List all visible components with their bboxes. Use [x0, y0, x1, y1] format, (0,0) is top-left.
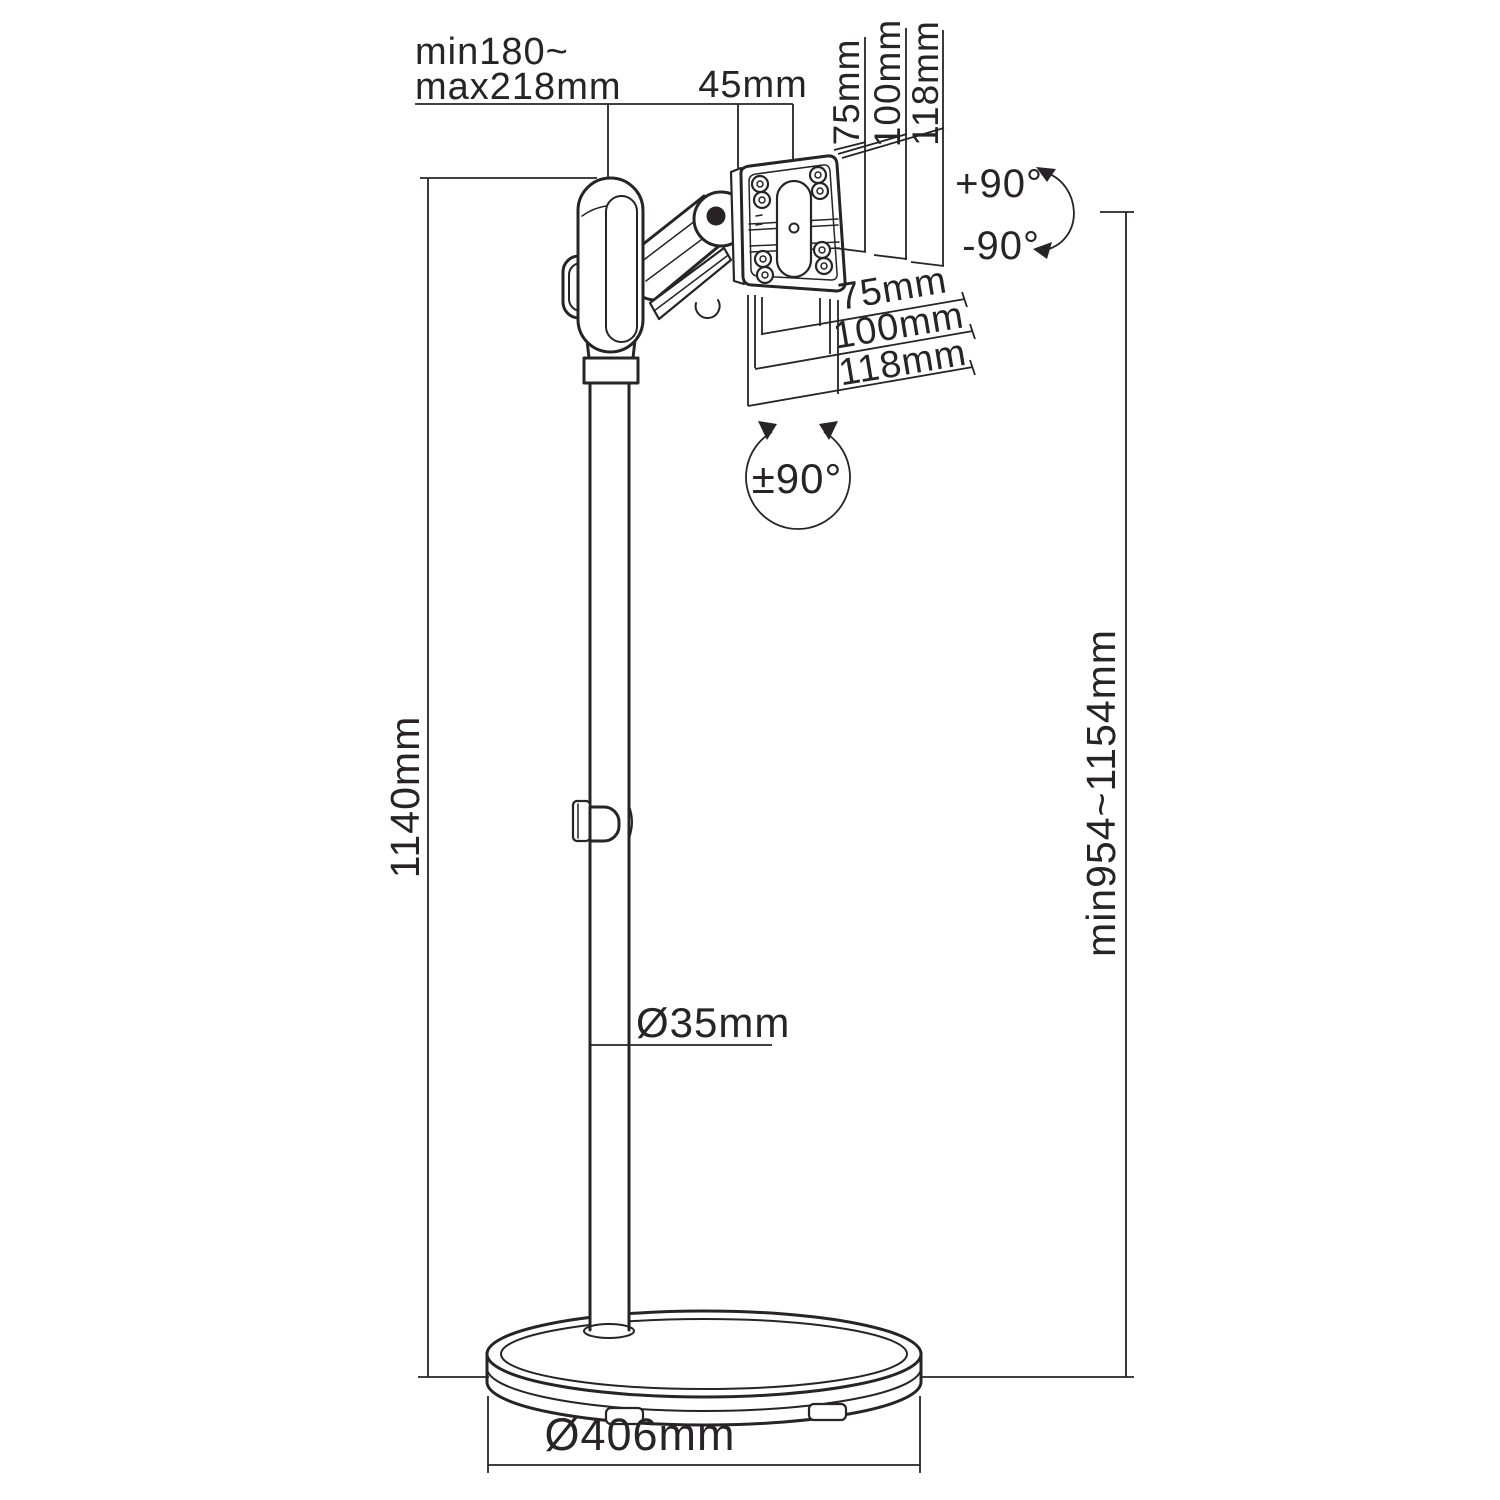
tab-lobe — [812, 183, 828, 199]
vesa-vertical-75-label: 75mm — [826, 39, 867, 146]
tilt-up-label: +90° — [955, 162, 1043, 206]
rotation-arrow-left-icon — [758, 421, 777, 440]
plate-mark — [756, 215, 762, 216]
vesa-plate — [731, 156, 845, 291]
spring-arm — [627, 192, 748, 319]
annotation-rotation: ±90° — [746, 421, 850, 529]
tab-lobe — [755, 251, 771, 267]
pole-diameter-label: Ø35mm — [636, 999, 790, 1046]
dim-base-diameter: Ø406mm — [488, 1396, 920, 1473]
dim-pole-height: 1140mm — [382, 178, 597, 1377]
base-foot-right — [809, 1404, 846, 1420]
pole-head — [563, 178, 643, 352]
dim-arm-reach: min180~ max218mm 45mm — [415, 31, 808, 179]
tab-lobe — [754, 192, 770, 208]
plate-center-boss — [777, 181, 811, 277]
tab-lobe — [757, 267, 773, 283]
dim-height-range: min954~1154mm — [1078, 212, 1134, 1377]
plate-mark — [756, 224, 762, 225]
pole-fill — [591, 384, 628, 1332]
plate-offset-label: 45mm — [698, 64, 808, 106]
tab-lobe — [752, 176, 768, 192]
base — [487, 1311, 921, 1425]
base-diameter-label: Ø406mm — [544, 1409, 735, 1460]
arm-end-screw — [707, 207, 726, 226]
tilt-down-label: -90° — [962, 224, 1040, 268]
dim-tick-100-bottom — [874, 255, 907, 259]
tilt-arc — [1046, 173, 1074, 250]
annotation-tilt: +90° -90° — [955, 162, 1074, 268]
rotation-label: ±90° — [752, 455, 843, 502]
clip-hook — [590, 807, 619, 841]
mount-diagram-svg: 1140mm min954~1154mm min180~ max218mm 45… — [0, 0, 1500, 1500]
arm-reach-label-line2: max218mm — [415, 66, 622, 108]
technical-drawing-canvas: 1140mm min954~1154mm min180~ max218mm 45… — [0, 0, 1500, 1500]
tab-lobe — [810, 167, 826, 183]
pole — [573, 384, 634, 1338]
tab-lobe — [816, 258, 832, 274]
vesa-vertical-100-label: 100mm — [867, 19, 908, 147]
dim-vesa-vertical: 75mm 100mm 118mm — [826, 19, 946, 266]
head-capsule — [578, 178, 643, 352]
vesa-vertical-118-label: 118mm — [905, 20, 946, 146]
height-range-label: min954~1154mm — [1078, 629, 1124, 957]
base-top-chamfer — [501, 1319, 907, 1389]
rotation-arrow-right-icon — [819, 421, 838, 440]
neck-collar — [584, 358, 638, 383]
clip-bracket — [573, 801, 590, 841]
pole-height-label: 1140mm — [382, 716, 428, 878]
arm-release-hook — [696, 300, 720, 318]
tab-lobe — [814, 242, 830, 258]
base-top-rim — [487, 1311, 921, 1397]
